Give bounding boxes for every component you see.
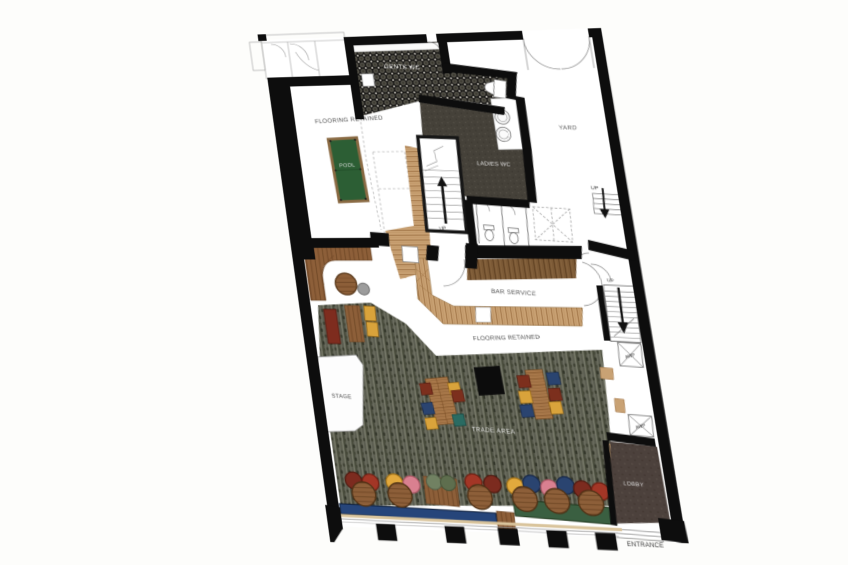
svg-text:POOL: POOL [339, 162, 356, 169]
svg-text:UP: UP [591, 185, 599, 191]
svg-text:STAGE: STAGE [331, 393, 352, 401]
svg-text:ENTRANCE: ENTRANCE [627, 542, 665, 550]
svg-text:UP: UP [607, 277, 614, 283]
svg-text:YARD: YARD [559, 125, 578, 132]
svg-text:LADIES WC: LADIES WC [477, 161, 511, 169]
svg-text:UP: UP [439, 225, 447, 231]
